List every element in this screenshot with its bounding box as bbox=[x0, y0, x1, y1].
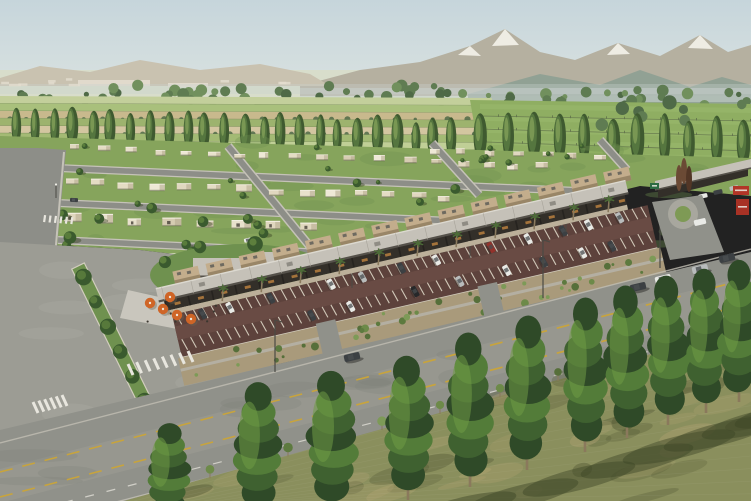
house bbox=[181, 151, 192, 156]
house bbox=[412, 192, 426, 198]
house bbox=[458, 161, 469, 167]
house bbox=[162, 218, 181, 227]
house bbox=[208, 152, 221, 157]
house bbox=[325, 190, 340, 198]
house bbox=[355, 190, 367, 196]
house bbox=[374, 155, 385, 161]
house bbox=[300, 223, 317, 231]
house bbox=[66, 179, 79, 185]
aerial-rendering bbox=[0, 0, 751, 501]
house bbox=[382, 191, 394, 197]
house bbox=[234, 154, 245, 159]
house bbox=[344, 155, 355, 160]
house bbox=[316, 154, 328, 160]
house bbox=[117, 183, 133, 190]
house bbox=[269, 190, 284, 196]
house bbox=[456, 148, 465, 154]
house bbox=[404, 157, 416, 164]
house bbox=[91, 179, 104, 186]
house bbox=[594, 155, 606, 160]
house bbox=[70, 144, 79, 149]
house bbox=[177, 183, 191, 190]
house bbox=[236, 184, 252, 192]
house bbox=[207, 184, 220, 190]
house bbox=[513, 152, 524, 157]
parked-car bbox=[70, 198, 78, 202]
house bbox=[98, 146, 110, 152]
render-canvas bbox=[0, 0, 751, 501]
house bbox=[126, 147, 137, 153]
house bbox=[156, 150, 166, 156]
house bbox=[128, 218, 141, 226]
house bbox=[438, 196, 450, 202]
house bbox=[266, 221, 280, 230]
house bbox=[289, 153, 301, 159]
house bbox=[149, 184, 164, 191]
house bbox=[431, 159, 441, 164]
house bbox=[484, 162, 495, 168]
house bbox=[536, 162, 548, 168]
house bbox=[430, 149, 440, 155]
house bbox=[300, 190, 315, 197]
house bbox=[259, 152, 268, 159]
